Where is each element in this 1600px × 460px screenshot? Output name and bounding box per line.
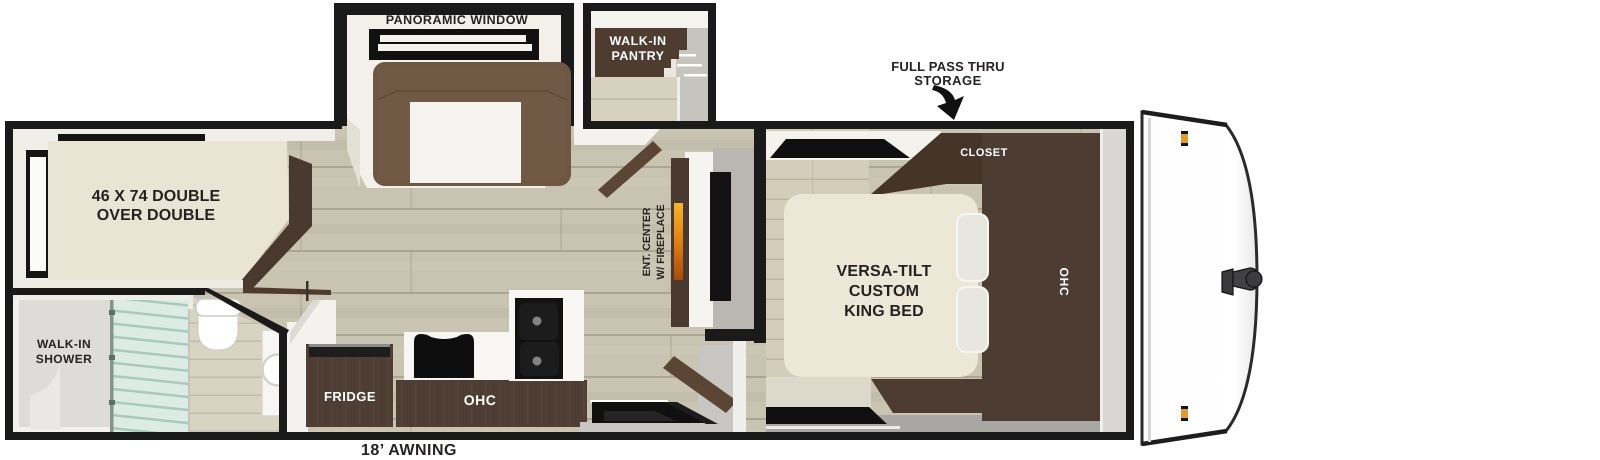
svg-text:CUSTOM: CUSTOM — [849, 283, 919, 300]
svg-text:SHOWER: SHOWER — [36, 352, 92, 366]
svg-text:FRIDGE: FRIDGE — [324, 389, 376, 404]
svg-text:W/ FIREPLACE: W/ FIREPLACE — [655, 204, 667, 279]
svg-text:KING BED: KING BED — [844, 303, 924, 320]
svg-text:18’ AWNING: 18’ AWNING — [361, 442, 457, 459]
svg-text:PANTRY: PANTRY — [611, 49, 664, 63]
svg-text:OHC: OHC — [1057, 267, 1071, 296]
svg-text:OVER DOUBLE: OVER DOUBLE — [97, 207, 216, 224]
svg-text:WALK-IN: WALK-IN — [610, 34, 667, 48]
svg-text:OHC: OHC — [464, 392, 497, 408]
svg-text:VERSA-TILT: VERSA-TILT — [836, 263, 931, 280]
svg-text:ENT. CENTER: ENT. CENTER — [641, 207, 653, 276]
svg-text:STORAGE: STORAGE — [914, 73, 982, 88]
svg-text:WALK-IN: WALK-IN — [37, 337, 91, 351]
svg-text:FULL PASS THRU: FULL PASS THRU — [891, 59, 1005, 74]
svg-text:CLOSET: CLOSET — [960, 147, 1008, 159]
svg-text:46 X 74 DOUBLE: 46 X 74 DOUBLE — [92, 188, 221, 205]
svg-text:PANORAMIC WINDOW: PANORAMIC WINDOW — [386, 13, 528, 27]
